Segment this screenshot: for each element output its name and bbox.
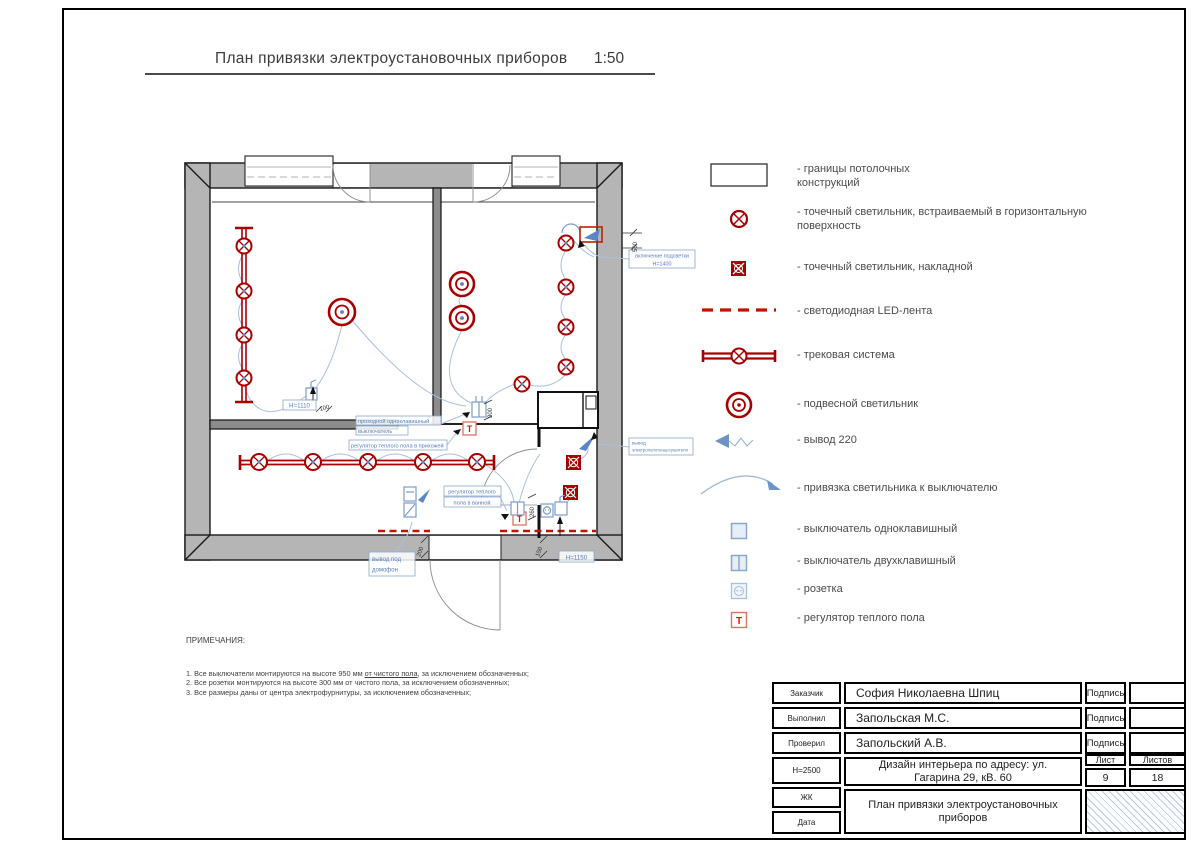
- signature-cell: [1129, 682, 1186, 704]
- project-cell: Дизайн интерьера по адресу: ул. Гагарина…: [844, 757, 1082, 786]
- legend-label: - светодиодная LED-лента: [797, 304, 1142, 318]
- svg-text:100: 100: [319, 404, 331, 413]
- svg-text:300: 300: [488, 407, 494, 418]
- legend-label: - точечный светильник, накладной: [797, 260, 1142, 274]
- svg-text:регулятор теплого пола в прихо: регулятор теплого пола в прихожей: [351, 442, 444, 449]
- legend-label: - выключатель двухклавишный: [797, 554, 1142, 568]
- pendant-light-icon: [700, 390, 778, 425]
- svg-text:вывод под: вывод под: [372, 557, 401, 563]
- executor-value: Запольская М.С.: [844, 707, 1082, 729]
- label-heat-hall: регулятор теплого пола в прихожей: [349, 440, 447, 450]
- legend-label: - привязка светильника к выключателю: [797, 481, 1142, 495]
- floor-heating-icon: Т: [700, 610, 778, 635]
- label-heat-bath: регулятор теплого пола в ванной: [444, 486, 501, 507]
- note-line: 2. Все розетки монтируются на высоте 300…: [186, 678, 529, 687]
- signature-cell: [1129, 732, 1186, 754]
- switch-single-icon: [700, 521, 778, 546]
- notes-heading: ПРИМЕЧАНИЯ:: [186, 636, 529, 645]
- svg-text:Т: Т: [467, 424, 473, 434]
- checker-label: Проверил: [772, 732, 841, 754]
- recessed-spot-icon: [700, 208, 778, 235]
- red-fixtures: Т Т: [235, 224, 602, 531]
- svg-text:домофон: домофон: [372, 568, 398, 574]
- notes: ПРИМЕЧАНИЯ: 1. Все выключатели монтируют…: [186, 636, 529, 697]
- date-label: Дата: [772, 811, 841, 834]
- svg-text:проходной одноклавишный: проходной одноклавишный: [358, 418, 429, 425]
- svg-text:выключатель: выключатель: [358, 429, 392, 435]
- sheets-label: Листов: [1129, 754, 1186, 766]
- note-line: 3. Все размеры даны от центра электрофур…: [186, 688, 529, 697]
- legend-label: - точечный светильник, встраиваемый в го…: [797, 205, 1142, 233]
- svg-text:пола в ванной: пола в ванной: [454, 499, 491, 506]
- svg-text:500: 500: [633, 241, 639, 252]
- intercom-outlet: [404, 487, 430, 517]
- legend-label: - выключатель одноклавишный: [797, 522, 1142, 536]
- outlet-220-icon: [700, 432, 778, 455]
- label-towel: вывод электрополотенцесушителя: [629, 438, 693, 455]
- socket-icon: [700, 581, 778, 606]
- signature-label: Подпись: [1085, 682, 1126, 704]
- svg-text:H=1150: H=1150: [566, 554, 588, 561]
- signature-label: Подпись: [1085, 707, 1126, 729]
- pendant-lights: [329, 272, 474, 330]
- note-line: 1. Все выключатели монтируются на высоте…: [186, 669, 529, 678]
- signature-cell: [1129, 707, 1186, 729]
- doc-title-cell: План привязки электроустановочных прибор…: [844, 789, 1082, 834]
- legend-label: - регулятор теплого пола: [797, 611, 1142, 625]
- complex-label: ЖК: [772, 787, 841, 808]
- executor-label: Выполнил: [772, 707, 841, 729]
- checker-value: Запольский А.В.: [844, 732, 1082, 754]
- legend-label: - границы потолочных конструкций: [797, 162, 957, 190]
- surface-spots: [563, 455, 581, 500]
- socket-bath: [541, 504, 553, 517]
- binding-arc-icon: [697, 470, 787, 503]
- legend-label: - вывод 220: [797, 433, 1142, 447]
- sheet-number: 9: [1085, 768, 1126, 787]
- legend-label: - розетка: [797, 582, 1142, 596]
- customer-value: София Николаевна Шпиц: [844, 682, 1082, 704]
- hatch-cell: [1085, 789, 1186, 834]
- track-system-icon: [700, 346, 778, 371]
- switch-bath: [511, 502, 524, 515]
- svg-text:H=1110: H=1110: [289, 403, 310, 410]
- switch-double-icon: [700, 553, 778, 578]
- label-h1150: H=1150: [559, 551, 594, 562]
- surface-spot-icon: [700, 259, 778, 284]
- signature-label: Подпись: [1085, 732, 1126, 754]
- partitions: [210, 188, 598, 538]
- customer-label: Заказчик: [772, 682, 841, 704]
- recessed-spots: [515, 236, 574, 392]
- svg-text:вывод: вывод: [632, 442, 646, 447]
- svg-text:Т: Т: [736, 616, 742, 627]
- label-intercom: вывод под домофон: [369, 552, 415, 576]
- svg-text:включение подсветки: включение подсветки: [635, 254, 689, 260]
- windows: [245, 156, 560, 560]
- svg-text:электрополотенцесушителя: электрополотенцесушителя: [632, 448, 688, 453]
- legend-label: - трековая система: [797, 348, 1142, 362]
- led-strip-icon: [700, 303, 778, 322]
- sheets-total: 18: [1129, 768, 1186, 787]
- svg-text:260: 260: [530, 506, 536, 517]
- switch-bedroom: [472, 396, 486, 417]
- height-label: Н=2500: [772, 757, 841, 784]
- sheet-label: Лист: [1085, 754, 1126, 766]
- label-h1110: H=1110: [283, 400, 316, 410]
- legend-label: - подвесной светильник: [797, 397, 1142, 411]
- ceiling-boundary-icon: [700, 162, 778, 193]
- svg-text:Н=1400: Н=1400: [652, 262, 671, 268]
- svg-text:регулятор теплого: регулятор теплого: [448, 489, 496, 495]
